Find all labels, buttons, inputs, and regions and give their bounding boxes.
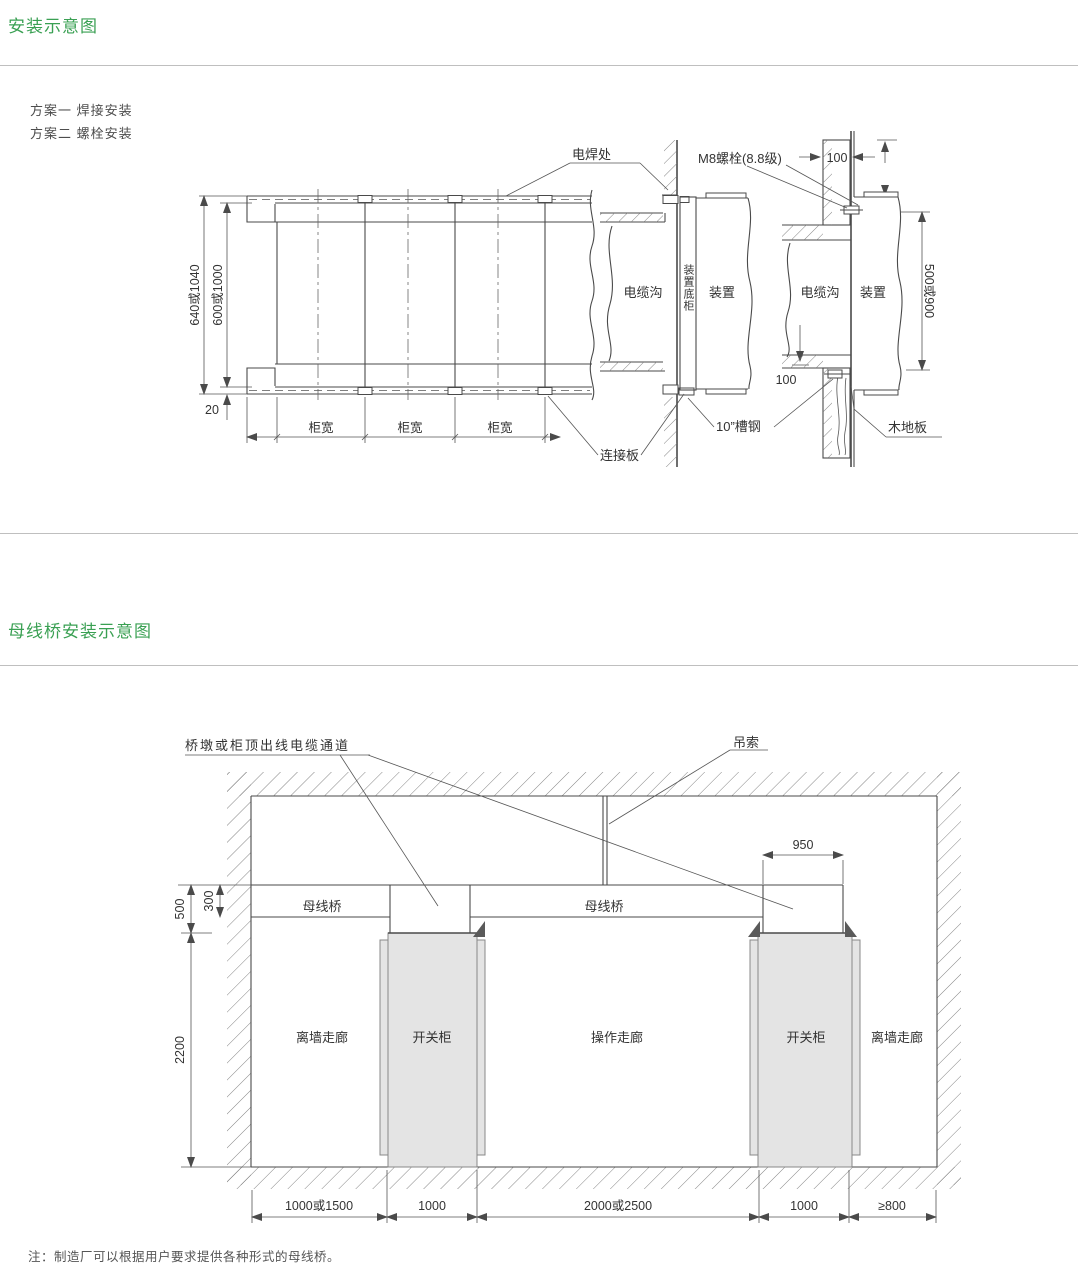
device-label: 装置 [860,285,886,300]
dim-500-text: 500 [173,899,187,920]
device-bottom-cabinet-label: 装置底柜 [680,264,695,312]
installation-diagram: 640或1040 600或1000 20 柜宽 柜宽 柜宽 [0,130,1078,480]
trench-break-line [607,226,612,361]
floor-hatch [227,1167,961,1189]
bolted-section-view: 100 电缆沟 [782,131,936,467]
dim-outer-width: 640或1040 [188,264,202,325]
scheme-1: 方案一 焊接安装 [30,99,133,122]
channel-label: 10”槽钢 [716,419,761,434]
dim-inner-width: 600或1000 [211,264,225,325]
divider-top [0,65,1078,66]
dim-2200-text: 2200 [173,1036,187,1064]
busbar-bridge-label: 母线桥 [302,899,341,914]
connection-plate-mark [538,196,552,203]
wall-corridor-label: 离墙走廊 [296,1030,348,1045]
left-wall-hatch [227,772,251,1185]
callouts-2: 桥墩或柜顶出线电缆通道 吊索 [185,735,793,909]
connection-plate-mark [538,388,552,395]
dim-20: 20 [205,403,219,417]
busbar-bridge-diagram: 母线桥 母线桥 离墙走廊 开关柜 操作走廊 开关柜 离墙走廊 桥墩或柜顶出线电缆… [0,690,1078,1235]
dim-cabinet-width: 柜宽 [487,420,512,435]
connection-plate-label: 连接板 [600,448,639,463]
dim-cabinet-width: 柜宽 [397,420,422,435]
wood-floor-label: 木地板 [888,420,927,435]
divider-middle [0,533,1078,534]
busbar-bridge: 母线桥 母线桥 [251,885,843,933]
cable-trench-label: 电缆沟 [623,285,662,300]
dim-cabinet-width: 柜宽 [308,420,333,435]
page: 安装示意图 方案一 焊接安装 方案二 螺栓安装 [0,0,1078,1281]
section2-title: 母线桥安装示意图 [8,617,152,642]
connection-plate-mark [448,388,462,395]
connection-plate-mark [358,196,372,203]
dim-b5-text: ≥800 [878,1199,906,1213]
right-wall-hatch [937,772,961,1185]
device-label: 装置 [709,285,735,300]
dim-100-bottom: 100 [776,373,797,387]
ceiling-hatch [227,772,961,796]
dim-b4-text: 1000 [790,1199,818,1213]
dim-b2-text: 1000 [418,1199,446,1213]
plan-view: 640或1040 600或1000 20 柜宽 柜宽 柜宽 [188,189,594,443]
dim-300-text: 300 [202,891,216,912]
dim-b3-text: 2000或2500 [584,1199,652,1213]
welded-section-view: 电缆沟 装置 100 [600,140,809,467]
switch-cabinet-label: 开关柜 [786,1030,825,1045]
connection-plate-mark [358,388,372,395]
connection-plate-mark [448,196,462,203]
busbar-bridge-label: 母线桥 [584,899,623,914]
dim-100-top: 100 [827,151,848,165]
weld-label: 电焊处 [572,147,611,162]
section1-title: 安装示意图 [8,12,98,37]
wall-corridor-label: 离墙走廊 [871,1030,923,1045]
dim-b1-text: 1000或1500 [285,1199,353,1213]
dim-side-height: 500或900 [922,264,936,318]
switch-cabinet-label: 开关柜 [412,1030,451,1045]
footnote: 注：制造厂可以根据用户要求提供各种形式的母线桥。 [28,1246,340,1265]
bolt-label: M8螺栓(8.8级) [698,151,782,166]
divider-section2 [0,665,1078,666]
operation-corridor-label: 操作走廊 [591,1030,643,1045]
cable-channel-label: 桥墩或柜顶出线电缆通道 [185,738,350,753]
sling-label: 吊索 [733,735,759,750]
dim-950: 950 [763,838,843,884]
dim-950-text: 950 [793,838,814,852]
cable-trench-label: 电缆沟 [800,285,839,300]
